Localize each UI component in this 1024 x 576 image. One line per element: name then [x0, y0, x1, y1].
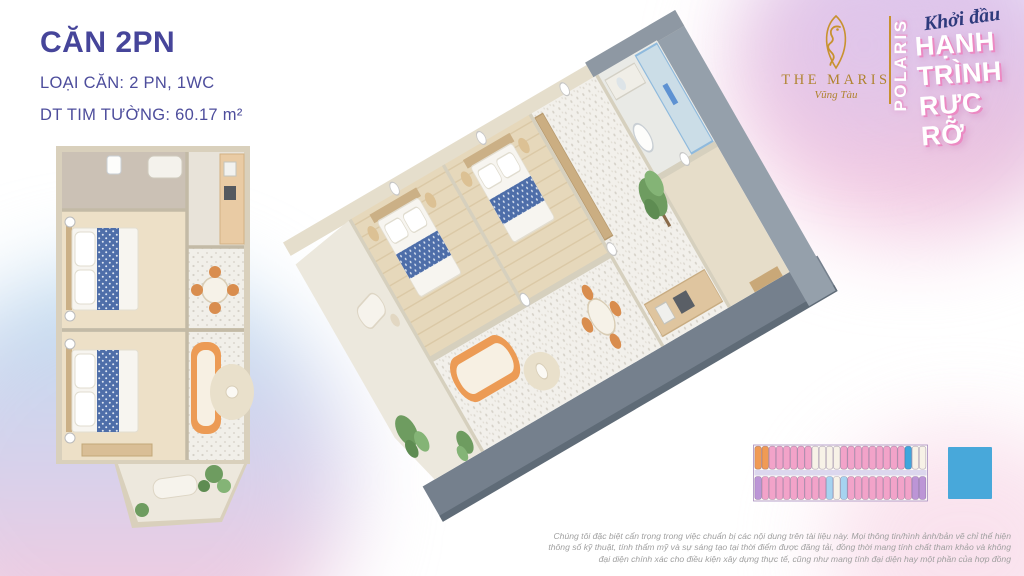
- bed1-2d: [65, 217, 138, 321]
- brand-logo: THE MARIS Vũng Tàu: [780, 14, 892, 101]
- tagline-line-3: RỰC RỠ: [918, 84, 1024, 151]
- tub-2d: [148, 156, 182, 178]
- keyplan-corridor: [755, 470, 927, 476]
- unit-area-label: DT TIM TƯỜNG: 60.17 m²: [40, 106, 243, 125]
- keyplan-legend-swatch: [948, 447, 992, 499]
- seahorse-icon: [809, 14, 863, 70]
- brand-location: Vũng Tàu: [780, 89, 892, 101]
- page-title: CĂN 2PN: [40, 26, 175, 60]
- floorplan-2d: [52, 142, 264, 540]
- disclaimer-text: Chúng tôi đặc biệt cẩn trọng trong việc …: [537, 531, 1011, 565]
- slide: CĂN 2PN LOẠI CĂN: 2 PN, 1WC DT TIM TƯỜNG…: [0, 0, 1024, 576]
- toilet-2d: [107, 156, 121, 174]
- brand-name: THE MARIS: [780, 72, 892, 89]
- unit-type-label: LOẠI CĂN: 2 PN, 1WC: [40, 74, 214, 93]
- campaign-tagline: HẠNH TRÌNH RỰC RỠ: [914, 25, 1024, 152]
- keyplan: [752, 443, 932, 505]
